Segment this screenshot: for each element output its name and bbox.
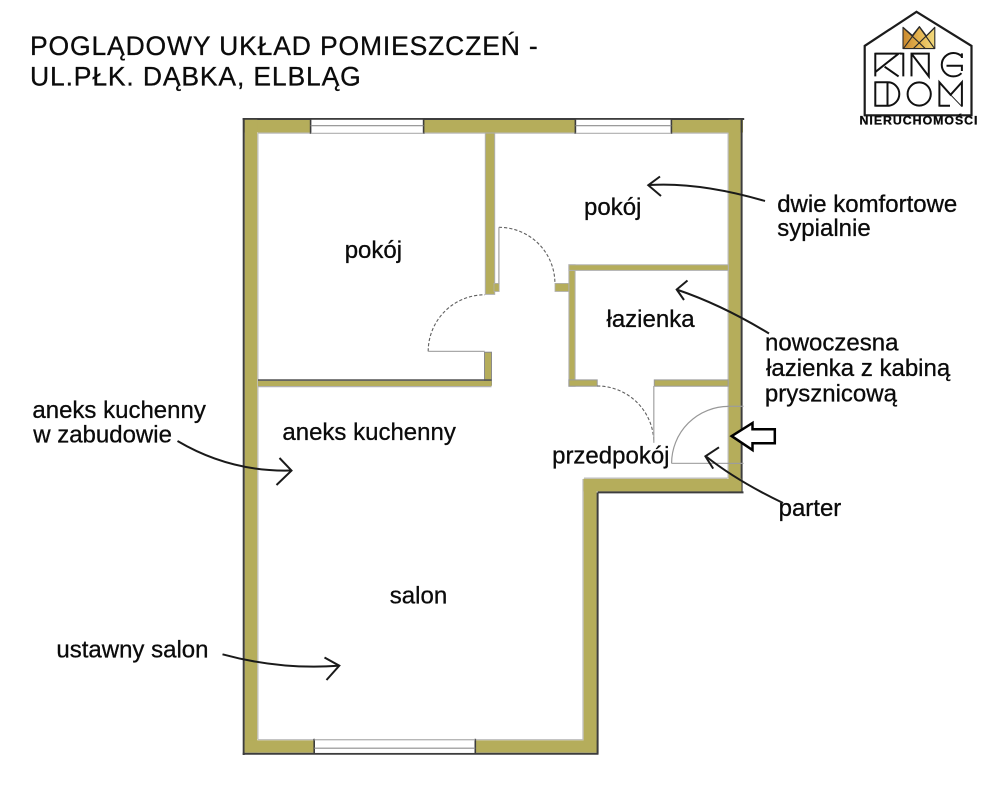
- svg-text:NIERUCHOMOŚCI: NIERUCHOMOŚCI: [860, 113, 979, 128]
- svg-text:w zabudowie: w zabudowie: [32, 422, 172, 449]
- svg-text:aneks kuchenny: aneks kuchenny: [32, 397, 205, 424]
- svg-text:prysznicową: prysznicową: [765, 380, 898, 407]
- svg-text:ustawny salon: ustawny salon: [56, 637, 208, 664]
- svg-text:pokój: pokój: [345, 237, 402, 264]
- svg-text:nowoczesna: nowoczesna: [765, 330, 899, 357]
- svg-text:POGLĄDOWY UKŁAD POMIESZCZEŃ -: POGLĄDOWY UKŁAD POMIESZCZEŃ -: [30, 31, 539, 61]
- svg-text:parter: parter: [779, 495, 842, 522]
- svg-text:aneks kuchenny: aneks kuchenny: [282, 419, 455, 446]
- svg-text:łazienka z kabiną: łazienka z kabiną: [766, 355, 951, 382]
- svg-text:łazienka: łazienka: [607, 306, 696, 333]
- svg-text:pokój: pokój: [584, 194, 641, 221]
- svg-text:UL.PŁK. DĄBKA, ELBLĄG: UL.PŁK. DĄBKA, ELBLĄG: [30, 61, 362, 91]
- svg-text:salon: salon: [390, 583, 447, 610]
- svg-text:sypialnie: sypialnie: [777, 215, 870, 242]
- svg-text:przedpokój: przedpokój: [552, 442, 669, 469]
